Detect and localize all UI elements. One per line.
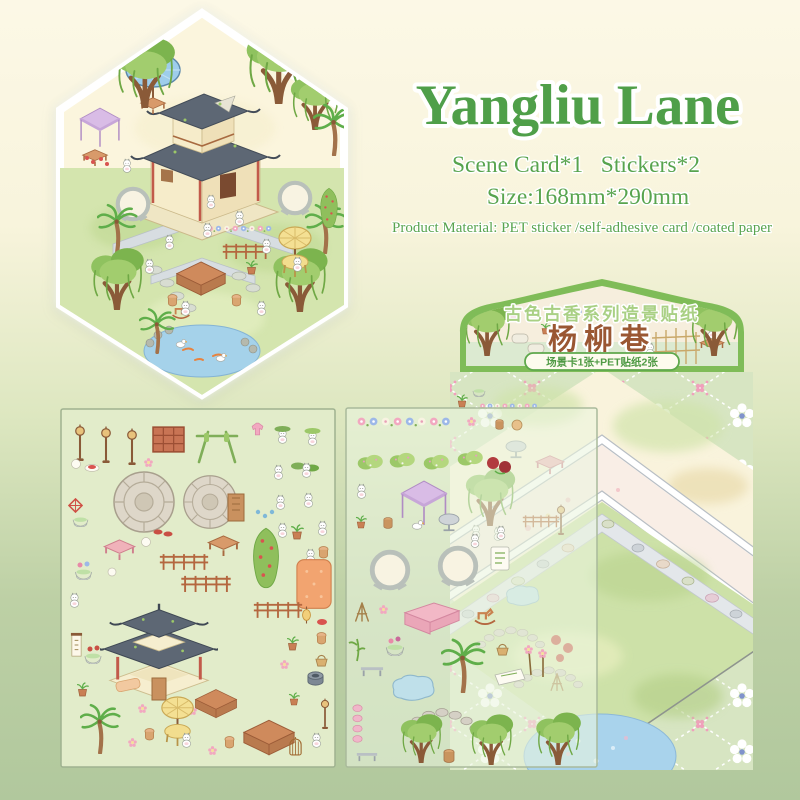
- sticker-sheet-1: [60, 408, 336, 768]
- ball-sticker: [142, 538, 151, 547]
- package-header: 古色古香系列造景贴纸 杨柳巷 场景卡1张+PET贴纸2张: [460, 279, 744, 372]
- door-panel-sticker: [228, 494, 244, 521]
- moon-gate-sticker: [372, 552, 408, 589]
- product-promo-page: Yangliu Lane Scene Card*1 Stickers*2 Siz…: [0, 0, 800, 800]
- cat-sticker: [497, 526, 505, 539]
- contents-badge-text: 场景卡1张+PET贴纸2张: [546, 356, 658, 369]
- sauce-dish-sticker: [85, 465, 99, 472]
- red-dish-sticker: [317, 619, 327, 625]
- drum-stool-sticker: [496, 420, 504, 430]
- cat-sticker: [274, 465, 282, 479]
- page-title: Yangliu Lane: [416, 74, 741, 137]
- stool-sticker: [145, 729, 154, 740]
- size-line: Size:168mm*290mm: [487, 184, 689, 210]
- sticker-sheet-2: [345, 407, 598, 768]
- hanging-scroll-sticker: [71, 633, 82, 656]
- product-name: 杨柳巷: [548, 323, 656, 356]
- orange-mat-sticker: [297, 560, 331, 609]
- contents-line: Scene Card*1 Stickers*2: [452, 152, 700, 178]
- stone-stove-sticker: [308, 672, 323, 685]
- window-frame-sticker: [153, 427, 184, 452]
- stone-platform-sticker: [114, 472, 174, 532]
- stool-sticker: [319, 547, 328, 558]
- stool-sticker: [317, 633, 326, 644]
- moon-gate-icon: [280, 183, 310, 215]
- berry-hedge-icon: [321, 188, 338, 228]
- barrel-sticker: [444, 750, 454, 763]
- cat-sticker: [304, 493, 312, 507]
- koi-pond: [144, 325, 260, 377]
- cat-sticker: [471, 534, 479, 547]
- stool-icon: [168, 295, 177, 306]
- egg-sticker: [72, 460, 81, 469]
- cat-sticker: [278, 523, 286, 537]
- cat-sticker: [70, 593, 78, 607]
- pond-stone-sticker: [393, 675, 434, 700]
- hexagon-scene-preview: [55, 8, 349, 400]
- material-line: Product Material: PET sticker /self-adhe…: [392, 220, 772, 236]
- cat-sticker: [357, 484, 365, 498]
- door-panel-sticker: [152, 678, 166, 700]
- cat-sticker: [312, 733, 320, 747]
- sign-card-sticker: [491, 547, 509, 570]
- stool-sticker: [225, 737, 234, 748]
- moon-gate-sticker: [440, 548, 476, 585]
- berry-hedge-sticker: [254, 528, 279, 587]
- cat-sticker: [318, 521, 326, 535]
- series-label: 古色古香系列造景贴纸: [505, 304, 700, 324]
- ball-sticker: [108, 568, 116, 576]
- cat-sticker: [182, 733, 190, 747]
- cat-sticker: [302, 463, 310, 477]
- bun-sticker: [512, 420, 522, 430]
- cat-sticker: [276, 495, 284, 509]
- stool-icon: [232, 295, 241, 306]
- title-block: Yangliu Lane Scene Card*1 Stickers*2 Siz…: [360, 52, 800, 247]
- drum-stool-sticker: [384, 518, 392, 529]
